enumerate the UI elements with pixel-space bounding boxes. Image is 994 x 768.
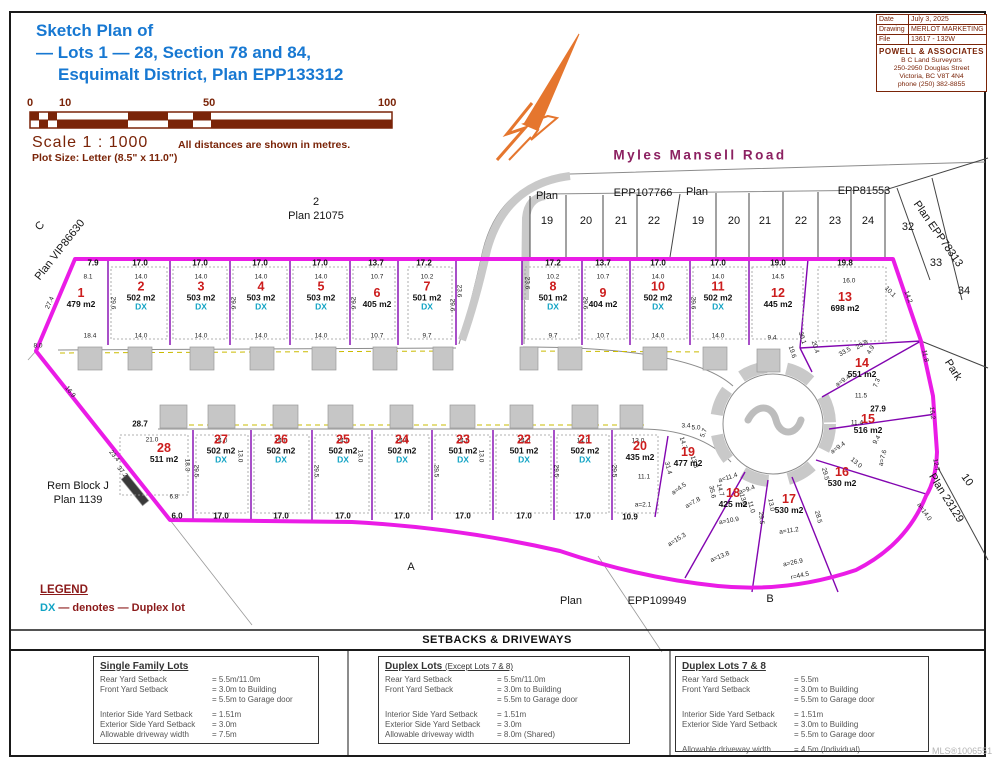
info-row-date: Date July 3, 2025 [877, 15, 986, 25]
setbacks-box-duplex-7-8: Duplex Lots 7 & 8 Rear Yard Setback= 5.5… [675, 656, 929, 752]
lot-duplex-flag: DX [267, 456, 296, 465]
info-file-label: File [877, 35, 909, 44]
road-name-label: Myles Mansell Road [613, 148, 786, 163]
title-line-1: Sketch Plan of [36, 20, 343, 42]
dimension-label: 23.6 [456, 285, 463, 298]
scale-tick-100: 100 [378, 97, 396, 109]
lot-duplex-flag: DX [539, 303, 568, 312]
lot-16-label: 16530 m2 [828, 466, 857, 488]
plan-context-label: 2 [313, 196, 319, 208]
dimension-label: 17.0 [710, 259, 726, 268]
dimension-label: 11.1 [638, 474, 650, 481]
title-line-2: — Lots 1 — 28, Section 78 and 84, [36, 42, 343, 64]
dimension-label: 18.4 [84, 333, 97, 340]
lot-28-label: 28511 m2 [150, 442, 178, 464]
plan-context-label: Plan [536, 190, 558, 202]
lot-14-label: 14551 m2 [848, 357, 877, 379]
dimension-label: 19.0 [770, 259, 786, 268]
dimension-label: 10.7 [371, 274, 384, 281]
firm-address-2: Victoria, BC V8T 4N4 [878, 73, 985, 80]
plot-size-label: Plot Size: Letter (8.5" x 11.0") [32, 152, 177, 164]
dimension-label: 9.4 [767, 335, 776, 342]
lot-2-label: 2502 m2DX [127, 281, 156, 312]
scale-note: All distances are shown in metres. [178, 139, 350, 151]
dimension-label: 29.6 [230, 297, 237, 310]
dimension-label: 10.7 [597, 333, 610, 340]
dimension-label: 17.0 [312, 259, 328, 268]
lot-duplex-flag: DX [388, 456, 417, 465]
legend: LEGEND DX — denotes — Duplex lot [40, 584, 185, 614]
dimension-label: 17.0 [650, 259, 666, 268]
dimension-label: 13.7 [368, 259, 384, 268]
info-row-file: File 13617 - 132W [877, 35, 986, 45]
legend-title: LEGEND [40, 584, 185, 596]
surveyor-firm-block: POWELL & ASSOCIATES B C Land Surveyors 2… [877, 45, 986, 91]
dimension-label: 14.0 [652, 333, 665, 340]
dimension-label: 29.6 [350, 297, 357, 310]
dimension-label: 29.5 [193, 465, 200, 478]
lot-17-label: 17530 m2 [775, 493, 804, 515]
lot-19-label: 19477 m2 [674, 446, 703, 468]
dimension-label: 10.7 [597, 274, 610, 281]
plan-context-label: EPP109949 [628, 595, 687, 607]
dimension-label: 29.5 [553, 465, 560, 478]
dimension-label: 13.0 [478, 450, 485, 463]
lot-26-label: 26502 m2DX [267, 434, 296, 465]
dimension-label: 18.3 [184, 459, 191, 472]
dimension-label: 11.5 [855, 393, 867, 400]
setbacks-box-1-title: Single Family Lots [100, 661, 312, 672]
dimension-label: 29.6 [110, 297, 117, 310]
lot-8-label: 8501 m2DX [539, 281, 568, 312]
info-drawing-value: MERLOT MARKETING [909, 25, 986, 34]
lot-3-label: 3503 m2DX [187, 281, 216, 312]
mls-number: MLS®1006551 [932, 746, 992, 756]
dimension-label: 28.7 [132, 420, 148, 429]
plan-context-label: EPP81553 [838, 185, 891, 197]
setbacks-box-2-title: Duplex Lots (Except Lots 7 & 8) [385, 661, 623, 672]
firm-subtitle: B C Land Surveyors [878, 57, 985, 64]
plan-context-label: A [407, 561, 414, 573]
surveyor-info-box: Date July 3, 2025 Drawing MERLOT MARKETI… [876, 14, 987, 92]
dimension-label: 10.7 [371, 333, 384, 340]
info-drawing-label: Drawing [877, 25, 909, 34]
lot-21-label: 21502 m2DX [571, 434, 600, 465]
sheet-title: Sketch Plan of — Lots 1 — 28, Section 78… [36, 20, 343, 86]
plan-context-label: 19 [692, 215, 704, 227]
setbacks-box-3-title: Duplex Lots 7 & 8 [682, 661, 922, 672]
dimension-label: 7.9 [87, 259, 98, 268]
lot-duplex-flag: DX [571, 456, 600, 465]
lot-6-label: 6405 m2 [363, 287, 392, 309]
plan-context-label: B [766, 593, 773, 605]
lot-12-label: 12445 m2 [764, 287, 793, 309]
dimension-label: 6.0 [171, 512, 182, 521]
dimension-label: 17.0 [192, 259, 208, 268]
plan-context-label: 20 [580, 215, 592, 227]
scale-tick-50: 50 [203, 97, 215, 109]
dimension-label: 29.6 [449, 299, 456, 312]
plan-context-label: EPP107766 [614, 187, 673, 199]
info-date-value: July 3, 2025 [909, 15, 986, 24]
dimension-label: 16.2 [928, 406, 936, 419]
lot-22-label: 22501 m2DX [510, 434, 539, 465]
dimension-label: 14.5 [772, 274, 785, 281]
lot-area: 477 m2 [674, 459, 703, 468]
lot-duplex-flag: DX [187, 303, 216, 312]
lot-area: 425 m2 [719, 500, 748, 509]
lot-area: 530 m2 [828, 479, 857, 488]
dimension-label: 17.0 [575, 512, 591, 521]
dimension-label: 17.2 [545, 259, 561, 268]
dimension-label: 17.0 [273, 512, 289, 521]
lot-area: 479 m2 [67, 300, 96, 309]
survey-sheet: 0 10 50 100 [0, 0, 994, 768]
dimension-label: 16.0 [843, 278, 856, 285]
setbacks-box-single-family: Single Family Lots Rear Yard Setback= 5.… [93, 656, 319, 744]
dimension-label: 14.0 [135, 333, 148, 340]
scale-tick-10: 10 [59, 97, 71, 109]
lot-11-label: 11502 m2DX [704, 281, 733, 312]
lot-23-label: 23501 m2DX [449, 434, 478, 465]
lot-5-label: 5503 m2DX [307, 281, 336, 312]
plan-context-label: Rem Block J [47, 480, 109, 492]
plan-context-label: 24 [862, 215, 874, 227]
lot-9-label: 9404 m2 [589, 287, 618, 309]
scale-bar: 0 10 50 100 [27, 97, 396, 128]
lot-24-label: 24502 m2DX [388, 434, 417, 465]
lot-20-label: 20435 m2 [626, 440, 655, 462]
dimension-label: 17.0 [455, 512, 471, 521]
dimension-label: 6.8 [169, 494, 178, 501]
dimension-label: 29.5 [757, 511, 765, 524]
firm-address-1: 250-2950 Douglas Street [878, 65, 985, 72]
dimension-label: 29.5 [313, 465, 320, 478]
plan-context-label: Plan [560, 595, 582, 607]
lot-18-label: 18425 m2 [719, 487, 748, 509]
dimension-label: 17.0 [252, 259, 268, 268]
dimension-label: 9.7 [548, 333, 557, 340]
info-row-drawing: Drawing MERLOT MARKETING [877, 25, 986, 35]
plan-context-label: 20 [728, 215, 740, 227]
lot-duplex-flag: DX [449, 456, 478, 465]
dimension-label: 14.0 [712, 333, 725, 340]
lot-duplex-flag: DX [329, 456, 358, 465]
lot-area: 698 m2 [831, 304, 860, 313]
lot-27-label: 27502 m2DX [207, 434, 236, 465]
dimension-label: 29.6 [582, 297, 589, 310]
lot-duplex-flag: DX [127, 303, 156, 312]
dimension-label: 17.0 [213, 512, 229, 521]
dimension-label: 17.0 [516, 512, 532, 521]
title-line-3: Esquimalt District, Plan EPP133312 [36, 64, 343, 86]
plan-context-label: 22 [795, 215, 807, 227]
lot-duplex-flag: DX [413, 303, 442, 312]
lot-25-label: 25502 m2DX [329, 434, 358, 465]
lot-duplex-flag: DX [307, 303, 336, 312]
plan-context-label: Plan 1139 [54, 494, 103, 506]
lot-duplex-flag: DX [207, 456, 236, 465]
firm-name: POWELL & ASSOCIATES [878, 47, 985, 56]
dimension-label: 17.0 [394, 512, 410, 521]
dimension-label: 17.2 [416, 259, 432, 268]
info-file-value: 13617 - 132W [909, 35, 986, 44]
lot-4-label: 4503 m2DX [247, 281, 276, 312]
plan-linework: 0 10 50 100 [0, 0, 994, 768]
dimension-label: 19.8 [837, 259, 853, 268]
plan-context-label: 33 [930, 257, 942, 269]
lot-area: 435 m2 [626, 453, 655, 462]
plan-context-label: 22 [648, 215, 660, 227]
dimension-label: 13.0 [237, 450, 244, 463]
north-arrow-icon [497, 34, 579, 160]
dimension-label: 13.7 [595, 259, 611, 268]
lot-area: 445 m2 [764, 300, 793, 309]
lot-duplex-flag: DX [644, 303, 673, 312]
dimension-label: 17.0 [335, 512, 351, 521]
lot-1-label: 1479 m2 [67, 287, 96, 309]
legend-dx-text: — denotes — Duplex lot [58, 602, 185, 614]
dimension-label: a=2.1 [635, 502, 651, 509]
lot-area: 530 m2 [775, 506, 804, 515]
dimension-label: 3.4 [681, 423, 690, 430]
dimension-label: 8.1 [83, 274, 92, 281]
plan-context-label: Plan [686, 186, 708, 198]
plan-context-label: 21 [615, 215, 627, 227]
firm-phone: phone (250) 382-8855 [878, 81, 985, 88]
lot-duplex-flag: DX [247, 303, 276, 312]
dimension-label: 17.0 [132, 259, 148, 268]
setbacks-box-duplex: Duplex Lots (Except Lots 7 & 8) Rear Yar… [378, 656, 630, 744]
legend-dx-code: DX [40, 602, 55, 614]
lot-duplex-flag: DX [704, 303, 733, 312]
plan-context-label: 21 [759, 215, 771, 227]
dimension-label: 14.0 [255, 333, 268, 340]
lot-area: 404 m2 [589, 300, 618, 309]
lot-7-label: 7501 m2DX [413, 281, 442, 312]
lot-13-label: 13698 m2 [831, 291, 860, 313]
lot-area: 551 m2 [848, 370, 877, 379]
dimension-label: 29.6 [690, 297, 697, 310]
dimension-label: 14.0 [195, 333, 208, 340]
dimension-label: 8.0 [33, 343, 42, 350]
dimension-label: 14.0 [315, 333, 328, 340]
lot-area: 511 m2 [150, 455, 178, 464]
scale-label: Scale 1 : 1000 [32, 134, 148, 152]
lot-15-label: 15516 m2 [854, 413, 883, 435]
dimension-label: 23.6 [524, 277, 531, 290]
dimension-label: 10.9 [622, 513, 638, 522]
lot-10-label: 10502 m2DX [644, 281, 673, 312]
info-date-label: Date [877, 15, 909, 24]
dimension-label: 29.5 [433, 465, 440, 478]
scale-tick-0: 0 [27, 97, 33, 109]
plan-context-label: 32 [902, 221, 914, 233]
plan-context-label: Plan 21075 [288, 210, 344, 222]
dimension-label: 29.5 [611, 465, 618, 478]
dimension-label: 5.0 [691, 425, 700, 432]
legend-duplex-row: DX — denotes — Duplex lot [40, 602, 185, 614]
dimension-label: 9.7 [422, 333, 431, 340]
plan-context-label: 19 [541, 215, 553, 227]
plan-context-label: 34 [958, 285, 970, 297]
setbacks-header: SETBACKS & DRIVEWAYS [422, 634, 572, 646]
lot-area: 516 m2 [854, 426, 883, 435]
lot-duplex-flag: DX [510, 456, 539, 465]
lot-area: 405 m2 [363, 300, 392, 309]
plan-context-label: 23 [829, 215, 841, 227]
